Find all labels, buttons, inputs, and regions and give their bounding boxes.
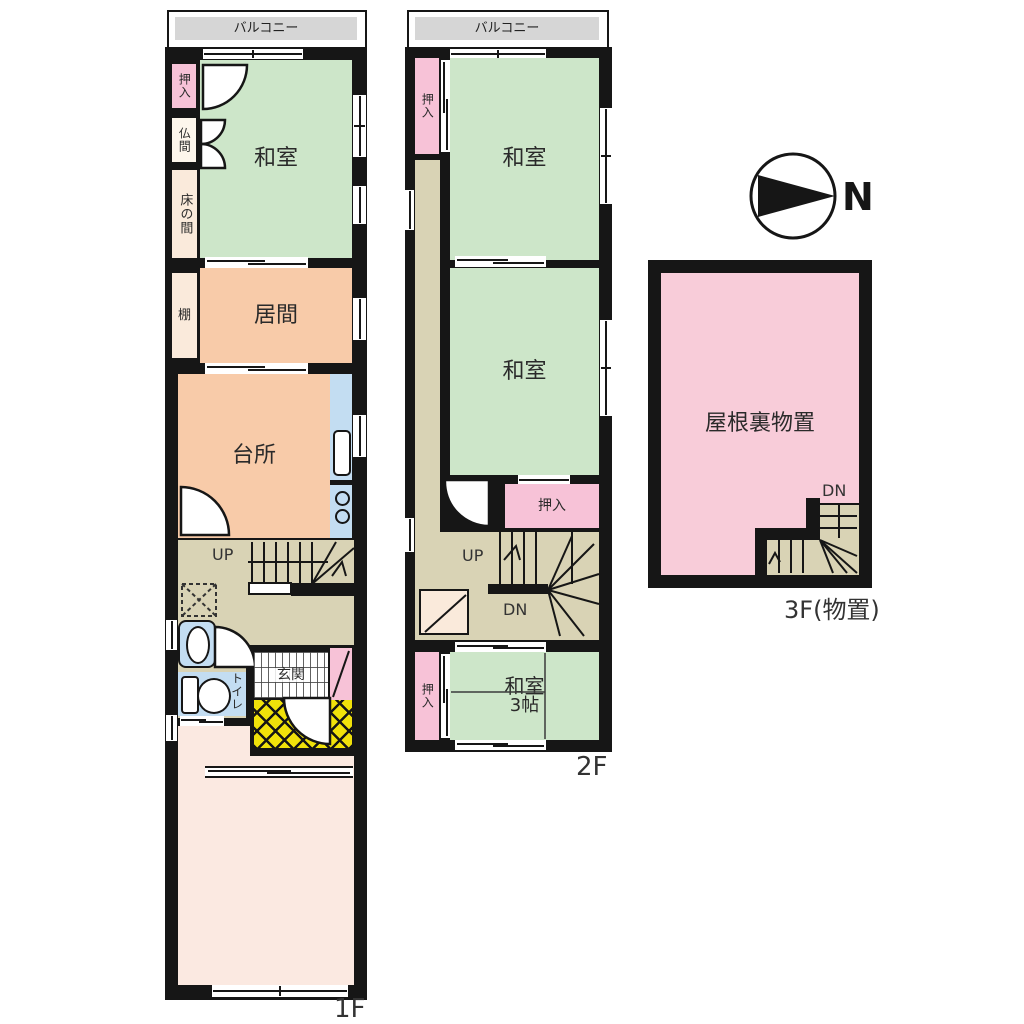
f2-window-left-1 [405, 190, 414, 230]
f2-window-right-1 [600, 108, 612, 204]
f2-room-washitsu-1: 和室 [450, 58, 599, 260]
f1-tokonoma-label: 床の間 [178, 193, 192, 235]
f1-bottom-window [212, 985, 348, 997]
f1-sliding-door-4 [205, 766, 353, 778]
f1-washitsu-label: 和室 [254, 147, 298, 170]
f1-balcony-label: バルコニー [234, 22, 299, 36]
entrance-door-icon [281, 695, 333, 747]
f1-kitchen-label: 台所 [232, 444, 276, 467]
f2-balcony-label: バルコニー [475, 22, 540, 36]
f1-sliding-door-3 [180, 716, 224, 726]
f2-room-oshiire-bottom: 押入 [415, 652, 439, 740]
tatami-lines [450, 652, 599, 740]
understair-closet-icon [419, 589, 469, 635]
f2-stairs-up-label: UP [462, 548, 483, 565]
f1-stairs-up-label: UP [212, 547, 233, 564]
f2-sliding-door-2 [455, 642, 546, 652]
f2-room-oshiire-top: 押入 [415, 58, 439, 154]
f1-room-shelf: 棚 [172, 273, 197, 358]
f1-toilet-label: トイレ [230, 672, 243, 718]
burner-icon [335, 491, 350, 506]
f2-sliding-door-1 [455, 256, 546, 267]
f1-oshiire-label: 押入 [178, 73, 191, 99]
f3-floor-label: 3F(物置) [784, 590, 880, 625]
burner-icon [335, 509, 350, 524]
washbasin-bowl-icon [186, 626, 210, 664]
f1-sliding-door-2 [205, 363, 308, 374]
compass-north-label: N [842, 178, 874, 218]
f2-corridor [415, 160, 440, 532]
toilet-bowl-icon [197, 678, 231, 714]
f1-window-right-1 [353, 95, 366, 157]
shoe-cabinet-icon [330, 648, 352, 700]
f1-window-left-2 [166, 715, 177, 741]
f2-stairs-dn-label: DN [503, 602, 527, 619]
stairs-up-icon [248, 542, 354, 598]
f1-butsuma-label: 仏間 [178, 127, 191, 153]
f1-living-label: 居間 [254, 304, 298, 327]
f2-room-washitsu-2: 和室 [450, 268, 599, 475]
f2-closet-window [518, 475, 570, 484]
f2-oshiire-bottom-label: 押入 [421, 683, 434, 709]
f2-oshiire-mid-label: 押入 [538, 499, 566, 514]
f1-balcony: バルコニー [175, 17, 357, 40]
f2-balcony-box: バルコニー [407, 10, 609, 51]
f2-closet-sliding-door [441, 60, 450, 152]
stairs-dn-icon [755, 498, 859, 575]
f2-washitsu2-label: 和室 [502, 360, 546, 383]
f2-window-right-2 [600, 320, 612, 416]
f1-entrance-label: 玄関 [275, 668, 307, 683]
washer-space-icon [180, 582, 218, 618]
f1-balcony-box: バルコニー [167, 10, 367, 51]
f2-oshiire-top-label: 押入 [421, 93, 434, 119]
f1-room-entrance: 玄関 [254, 652, 328, 698]
door-arc-icon [212, 624, 258, 670]
stairs-updn-icon [488, 530, 599, 640]
f1-window-right-4 [353, 415, 366, 457]
f1-room-living: 居間 [200, 268, 352, 363]
f2-balcony: バルコニー [415, 17, 599, 40]
f2-washitsu1-label: 和室 [502, 147, 546, 170]
f1-window-left-1 [166, 620, 177, 650]
f2-floor-label: 2F [576, 752, 608, 782]
f2-sliding-door-3 [455, 740, 546, 750]
f1-bottom-room [178, 756, 354, 985]
double-door-icon [198, 116, 230, 172]
f1-bottom-room-upper [178, 726, 250, 756]
door-arc-icon [442, 477, 492, 529]
f1-window-right-2 [353, 186, 366, 224]
floorplan-canvas: バルコニー 和室 押入 仏間 床の間 居間 棚 台所 [0, 0, 1024, 1024]
f1-top-window [203, 49, 303, 59]
door-arc-icon [200, 62, 250, 112]
f1-floor-label: 1F [334, 994, 366, 1024]
f2-window-left-2 [405, 518, 414, 552]
f1-room-oshiire: 押入 [172, 64, 196, 108]
kitchen-sink-icon [333, 430, 351, 476]
f3-attic-label: 屋根裏物置 [705, 412, 815, 435]
f1-window-right-3 [353, 298, 366, 340]
f2-room-oshiire-mid: 押入 [505, 484, 599, 528]
f1-shelf-label: 棚 [178, 309, 191, 323]
f3-stairs-dn-label: DN [822, 483, 846, 500]
f2-closet-sliding-door-2 [441, 654, 450, 738]
f1-sliding-door-1 [205, 257, 308, 268]
f1-room-tokonoma: 床の間 [172, 170, 197, 258]
door-arc-icon [178, 484, 230, 538]
f1-room-butsuma: 仏間 [172, 118, 196, 162]
